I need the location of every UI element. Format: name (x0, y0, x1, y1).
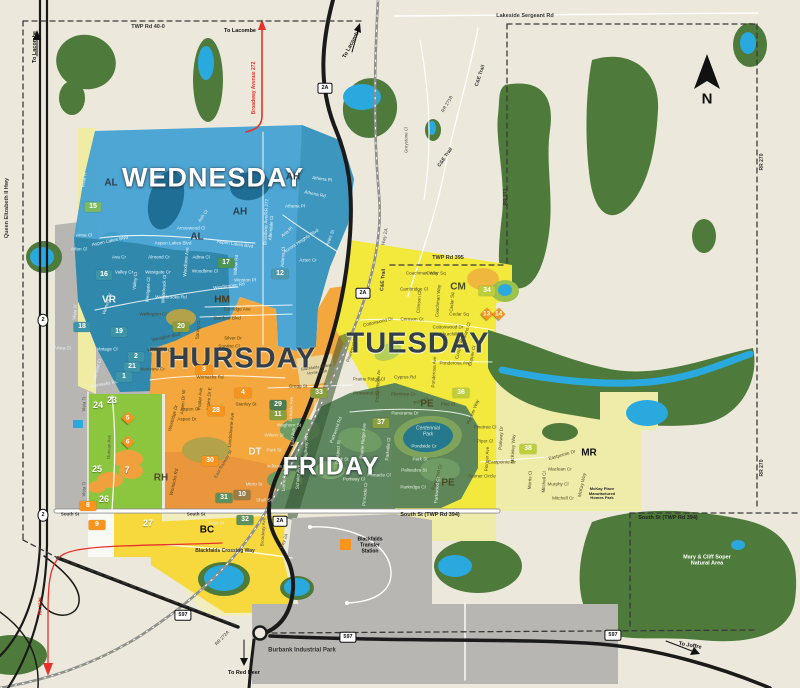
forest (497, 83, 550, 288)
lake (284, 578, 310, 596)
industrial-zone (252, 604, 618, 684)
lake (438, 555, 472, 577)
unit-marker-number: 5 (123, 414, 132, 422)
park (88, 481, 106, 493)
block (315, 461, 345, 479)
lake (498, 284, 512, 296)
lake (30, 247, 54, 267)
forest (59, 81, 85, 115)
block (88, 513, 114, 557)
highway-shield: 2 (37, 314, 48, 327)
unit-marker-number: 14 (494, 310, 503, 318)
lake (626, 400, 668, 426)
road-end (345, 601, 349, 605)
transfer-station-icon (340, 539, 351, 550)
block (420, 458, 460, 482)
unit-marker-number: 6 (123, 438, 132, 446)
pond (73, 420, 83, 428)
highway-shield: 2 (37, 509, 48, 522)
unit-marker-number: 13 (482, 310, 491, 318)
highway-shield: 597 (174, 610, 191, 621)
lake (740, 32, 756, 54)
forest (625, 602, 695, 638)
highway-shield: 597 (604, 630, 621, 641)
highway-shield: 2A (272, 516, 287, 527)
park (182, 437, 230, 463)
map-canvas (0, 0, 800, 688)
lake (198, 46, 214, 80)
forest (692, 219, 716, 253)
collection-zone-map: WEDNESDAYTHURSDAYTUESDAYFRIDAYALAHAHALVR… (0, 0, 800, 688)
highway-shield: 2A (355, 288, 370, 299)
highway-shield: 597 (339, 632, 356, 643)
roundabout (254, 627, 267, 640)
highway-shield: 2A (317, 83, 332, 94)
park (119, 463, 143, 479)
lake (731, 540, 745, 550)
road-end (308, 525, 312, 529)
park (166, 309, 196, 327)
forest (542, 423, 578, 441)
